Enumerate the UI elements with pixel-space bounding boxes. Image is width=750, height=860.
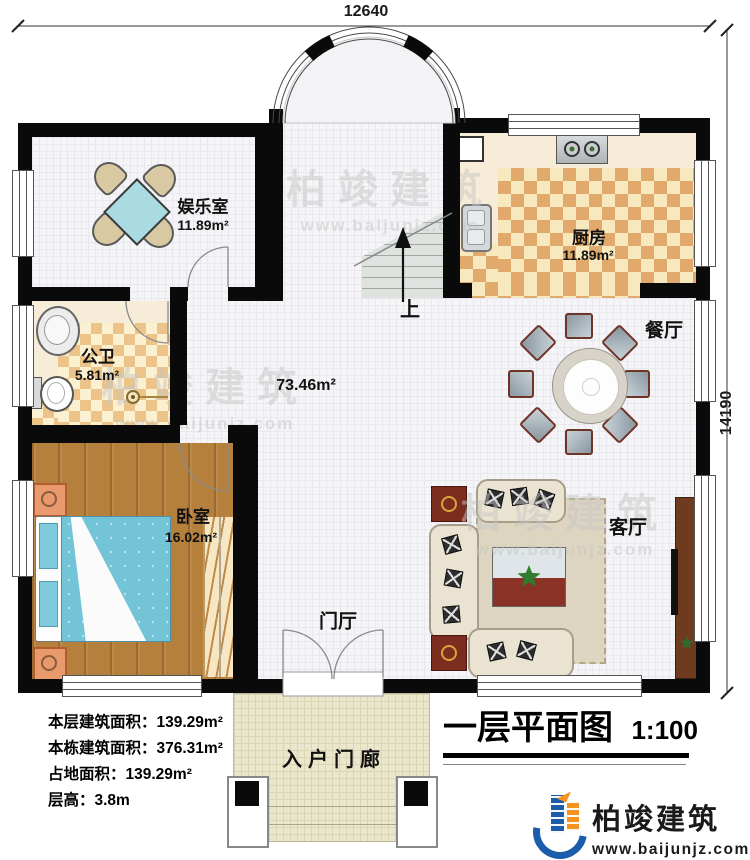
room-area-bathroom: 5.81m² <box>75 368 119 382</box>
tv <box>671 549 678 615</box>
brand-logo-icon <box>533 791 589 849</box>
bay-window-arc <box>285 39 453 123</box>
bed-blanket <box>62 517 170 641</box>
kitchen-sink <box>461 204 492 252</box>
coffee-table <box>492 547 566 607</box>
nightstand <box>33 483 67 517</box>
sofa-pillow <box>516 640 537 661</box>
ornament <box>441 645 457 661</box>
sofa-pillow <box>484 488 504 508</box>
wall-segment <box>255 123 283 301</box>
lamp <box>41 491 57 507</box>
dining-chair <box>508 370 534 398</box>
wall-segment <box>443 283 472 298</box>
sofa-pillow <box>444 569 464 589</box>
porch-column <box>235 781 259 806</box>
side-table <box>431 486 467 522</box>
wall-segment <box>200 679 283 693</box>
room-label-living: 客厅 <box>609 519 647 538</box>
room-area-bedroom: 16.02m² <box>165 530 217 544</box>
wall-segment <box>18 575 32 693</box>
room-label-bedroom: 卧室 <box>176 509 210 526</box>
info-line: 层高：3.8m <box>48 788 223 814</box>
dimension-tick <box>704 20 716 32</box>
wall-segment <box>696 118 710 160</box>
side-table <box>431 635 467 671</box>
pillow-blue <box>39 581 58 627</box>
bay-window-arc <box>273 27 465 123</box>
title-underline <box>443 753 689 758</box>
closet-rail <box>219 517 221 677</box>
window <box>12 170 34 257</box>
dining-table <box>552 348 628 424</box>
wall-segment <box>228 287 283 301</box>
wall-segment <box>640 283 696 298</box>
wall-segment <box>18 425 180 443</box>
title-underline-thin <box>443 764 686 765</box>
brand-website: www.baijunjz.com <box>592 841 750 859</box>
kitchen-passage-floor <box>472 283 640 298</box>
plant <box>517 565 541 589</box>
room-label-bathroom: 公卫 <box>81 349 115 366</box>
dining-chair <box>565 313 593 339</box>
title-scale: 1:100 <box>631 715 698 745</box>
room-label-kitchen: 厨房 <box>572 230 606 247</box>
floor-plan: 柏竣建筑 www.baijunjz.com 柏竣建筑 www.baijunjz.… <box>0 0 750 860</box>
ornament <box>441 496 457 512</box>
sink-bowl <box>467 210 485 226</box>
kitchen-floor <box>498 168 696 283</box>
window <box>508 114 640 136</box>
bed-headboard <box>35 516 63 642</box>
bay-mullion <box>406 41 429 56</box>
wall-segment <box>18 287 130 301</box>
sofa-left <box>429 524 479 640</box>
wall-segment <box>170 287 188 301</box>
sofa-pillow <box>534 489 556 511</box>
bed-mattress <box>61 516 171 642</box>
window <box>694 160 716 267</box>
room-area-entertainment: 11.89m² <box>177 218 228 232</box>
sink-bowl <box>467 229 485 245</box>
stairs-up-label: 上 <box>400 300 420 320</box>
wall-segment <box>443 118 508 133</box>
sofa-bottom <box>468 628 574 678</box>
toilet-seat <box>47 382 65 404</box>
window <box>12 305 34 407</box>
info-line: 本层建筑面积：139.29m² <box>48 710 223 736</box>
dining-table-center <box>582 378 600 396</box>
sofa-pillow <box>441 534 462 555</box>
info-block: 本层建筑面积：139.29m² 本栋建筑面积：376.31m² 占地面积：139… <box>48 710 223 814</box>
wall-segment <box>233 443 258 679</box>
bay-floor <box>283 37 455 123</box>
wall-segment <box>696 400 710 475</box>
sofa-top <box>476 479 566 523</box>
logo-tower-orange <box>567 801 579 831</box>
window <box>694 300 716 402</box>
stove <box>556 135 608 164</box>
wall-segment <box>696 265 710 300</box>
wall-segment <box>18 679 62 693</box>
bay-mullion <box>309 41 332 56</box>
dimension-tick <box>721 687 733 699</box>
window <box>62 675 202 697</box>
dimension-width: 12640 <box>344 3 389 21</box>
room-label-dining: 餐厅 <box>645 322 683 341</box>
hall-area: 73.46m² <box>276 378 336 394</box>
window <box>477 675 642 697</box>
porch-column <box>404 781 428 806</box>
wall-segment <box>170 301 187 425</box>
room-area-kitchen: 11.89m² <box>562 248 613 262</box>
pillow-blue <box>39 523 58 569</box>
window <box>12 480 34 577</box>
wall-segment <box>18 123 255 137</box>
wall-segment <box>640 679 710 693</box>
toilet-bowl <box>40 376 74 412</box>
sofa-pillow <box>486 641 506 661</box>
dimension-height: 14190 <box>718 391 736 436</box>
dimension-tick <box>721 24 733 36</box>
room-label-entertainment: 娱乐室 <box>178 199 229 216</box>
window <box>694 475 716 642</box>
wall-segment <box>443 108 460 298</box>
room-label-foyer: 门厅 <box>319 613 357 632</box>
brand-block: 柏竣建筑 www.baijunjz.com <box>592 796 750 859</box>
bathroom-sink <box>36 306 80 356</box>
sofa-pillow <box>442 605 460 623</box>
room-label-porch: 入户门廊 <box>282 750 386 770</box>
page-title: 一层平面图 <box>443 709 613 747</box>
wall-segment <box>383 679 477 693</box>
title-block: 一层平面图 1:100 <box>443 700 698 765</box>
brand-name: 柏竣建筑 <box>592 796 750 838</box>
dimension-tick <box>12 20 24 32</box>
info-line: 占地面积：139.29m² <box>48 762 223 788</box>
sofa-pillow <box>510 487 529 506</box>
info-line: 本栋建筑面积：376.31m² <box>48 736 223 762</box>
wall-segment <box>228 425 258 443</box>
dining-chair <box>565 429 593 455</box>
kitchen-niche <box>458 136 484 162</box>
lamp <box>41 655 57 671</box>
bay-window-arc <box>279 33 459 123</box>
wall-segment <box>269 109 283 124</box>
plant <box>680 636 694 650</box>
sink-basin <box>44 315 70 345</box>
